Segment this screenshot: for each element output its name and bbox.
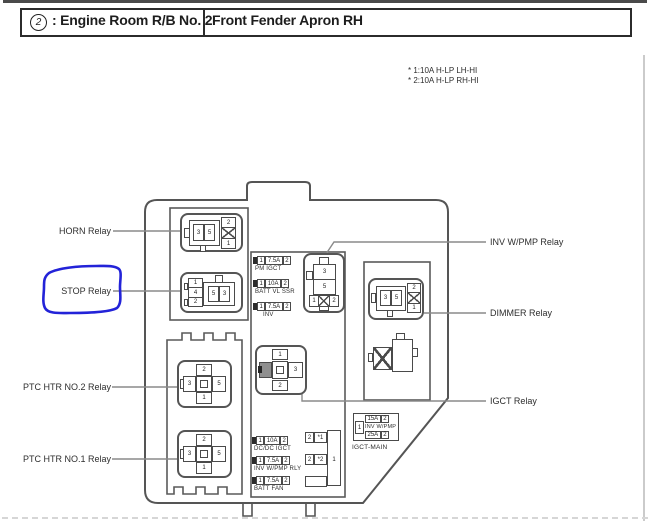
comb-bottom-arm <box>305 476 327 487</box>
fuse-batt-fan: 1 7.5A 2 <box>252 476 290 485</box>
horn-pin-1: 1 <box>221 238 236 249</box>
fuse-pin: 1 <box>257 279 265 288</box>
ptc1-pin-bottom: 1 <box>196 462 212 474</box>
fuse-amp: 7.5A <box>265 302 282 311</box>
ptc-htr-no1-relay: 2 3 5 1 <box>177 430 232 478</box>
fuse-inv-wpmp-rly-label: INV W/PMP RLY <box>254 466 301 472</box>
fuse-inv: 1 7.5A 2 <box>253 302 291 311</box>
fuse-pin: 1 <box>257 302 265 311</box>
dimmer-pin-3: 3 <box>380 290 391 306</box>
unlabeled-relay-left-tab <box>368 353 373 362</box>
fuse-batt-vl-ssr-label: BATT VL SSR <box>255 289 295 295</box>
igct-pin-bottom: 2 <box>272 380 288 391</box>
unlabeled-relay <box>368 333 420 375</box>
inv-wpmp-pin-5: 5 <box>313 279 336 295</box>
horn-relay-bottom-tab <box>200 245 206 252</box>
fuse-pin: 1 <box>256 456 264 465</box>
fuse-pin: 2 <box>282 456 290 465</box>
bottom-tab-right <box>306 503 315 516</box>
fuse-pin: 1 <box>257 256 265 265</box>
fuse-pin: 2 <box>283 256 291 265</box>
igct-center-core <box>276 366 284 374</box>
fuse-pin: 1 <box>256 476 264 485</box>
fuse-pin: 2 <box>283 302 291 311</box>
fuse-amp: 10A <box>265 279 281 288</box>
fuse-batt-fan-label: BATT FAN <box>254 486 284 492</box>
ptc1-pin-right: 5 <box>212 446 226 462</box>
ptc1-center-core <box>200 450 208 458</box>
fuse-batt-vl-ssr: 1 10A 2 <box>253 279 289 288</box>
unlabeled-relay-crossed-pin-icon <box>373 347 392 370</box>
horn-relay-label: HORN Relay <box>59 226 111 236</box>
bottom-tab-left <box>243 503 252 516</box>
fuse-pin: 1 <box>256 436 264 445</box>
fuse-pm-igct: 1 7.5A 2 <box>253 256 291 265</box>
igct-main-row2: 25A 2 <box>365 431 389 439</box>
ptc-htr-no2-relay-label: PTC HTR NO.2 Relay <box>23 382 111 392</box>
inv-wpmp-leader-line <box>326 242 486 254</box>
ptc1-pin-left: 3 <box>183 446 196 462</box>
dimmer-pin-1: 1 <box>407 303 421 313</box>
inv-wpmp-relay-label: INV W/PMP Relay <box>490 237 563 247</box>
igct-main-row1: 15A 2 <box>365 415 389 423</box>
comb-connector: 2 *1 2 *2 1 <box>305 429 343 489</box>
stop-pin-3: 3 <box>219 286 230 302</box>
fuse-pin: 2 <box>381 431 389 439</box>
comb-bar-pin: 1 <box>330 454 338 465</box>
fuse-amp: 7.5A <box>264 456 281 465</box>
igct-relay: 1 3 2 <box>255 345 307 395</box>
fuse-amp: 7.5A <box>264 476 281 485</box>
stop-relay: 1 4 2 5 3 <box>180 272 243 313</box>
igct-pin-top: 1 <box>272 349 288 360</box>
ptc-htr-no2-relay: 2 3 5 1 <box>177 360 232 408</box>
inv-wpmp-pin-2: 2 <box>329 295 339 307</box>
comb-pin: *1 <box>314 432 327 443</box>
stop-pin-5: 5 <box>208 286 219 302</box>
fuse-amp: 7.5A <box>265 256 282 265</box>
igct-pin-right: 3 <box>288 362 303 378</box>
igct-main-mid-label: INV W/PMP <box>365 424 396 430</box>
dimmer-pin-5: 5 <box>391 290 402 306</box>
horn-pin-5: 5 <box>204 224 215 241</box>
horn-pin-3: 3 <box>193 224 204 241</box>
dimmer-relay-label: DIMMER Relay <box>490 308 552 318</box>
igct-main-block: 1 15A 2 INV W/PMP 25A 2 IGCT-MAIN <box>352 413 402 453</box>
fuse-pin: 2 <box>280 436 288 445</box>
fuse-pin: 2 <box>282 476 290 485</box>
comb-pin: 2 <box>305 432 314 443</box>
fuse-amp: 15A <box>365 415 381 423</box>
inv-wpmp-pin-3: 3 <box>313 264 336 280</box>
igct-main-side-pin: 1 <box>355 421 364 434</box>
manual-page: 2 : Engine Room R/B No. 2 Front Fender A… <box>0 0 650 521</box>
igct-relay-label: IGCT Relay <box>490 396 537 406</box>
page-edge-line <box>643 55 645 521</box>
fuse-pm-igct-label: PM IGCT <box>255 266 281 272</box>
unlabeled-relay-right-tab <box>412 348 418 357</box>
horn-relay: 3 5 2 1 <box>180 213 243 252</box>
ptc2-center-core <box>200 380 208 388</box>
fuse-dcdc-igct: 1 10A 2 <box>252 436 288 445</box>
ptc2-pin-left: 3 <box>183 376 196 392</box>
inv-wpmp-left-tab <box>306 271 313 280</box>
fuse-inv-label: INV <box>263 312 274 318</box>
fuse-amp: 10A <box>264 436 280 445</box>
unlabeled-relay-body <box>392 339 413 372</box>
dimmer-bottom-tab <box>387 310 393 317</box>
fuse-inv-wpmp-rly: 1 7.5A 2 <box>252 456 290 465</box>
comb-pin: 2 <box>305 454 314 465</box>
fuse-pin: 2 <box>281 279 289 288</box>
inv-wpmp-bottom-tab <box>319 306 329 311</box>
ptc2-pin-bottom: 1 <box>196 392 212 404</box>
stop-relay-label: STOP Relay <box>61 286 111 296</box>
igct-left-marker <box>258 366 262 373</box>
fuse-dcdc-igct-label: DC/DC IGCT <box>254 446 291 452</box>
fuse-amp: 25A <box>365 431 381 439</box>
ptc2-pin-top: 2 <box>196 364 212 376</box>
ptc1-pin-top: 2 <box>196 434 212 446</box>
inv-wpmp-relay: 3 5 1 2 <box>303 253 345 313</box>
ptc2-pin-right: 5 <box>212 376 226 392</box>
comb-pin: *2 <box>314 454 327 465</box>
page-bottom-dashes <box>2 517 648 519</box>
dimmer-relay: 3 5 2 1 <box>368 278 424 320</box>
ptc-htr-no1-relay-label: PTC HTR NO.1 Relay <box>23 454 111 464</box>
igct-main-label: IGCT-MAIN <box>352 444 387 451</box>
stop-pin-2: 2 <box>188 297 203 307</box>
fuse-pin: 2 <box>381 415 389 423</box>
